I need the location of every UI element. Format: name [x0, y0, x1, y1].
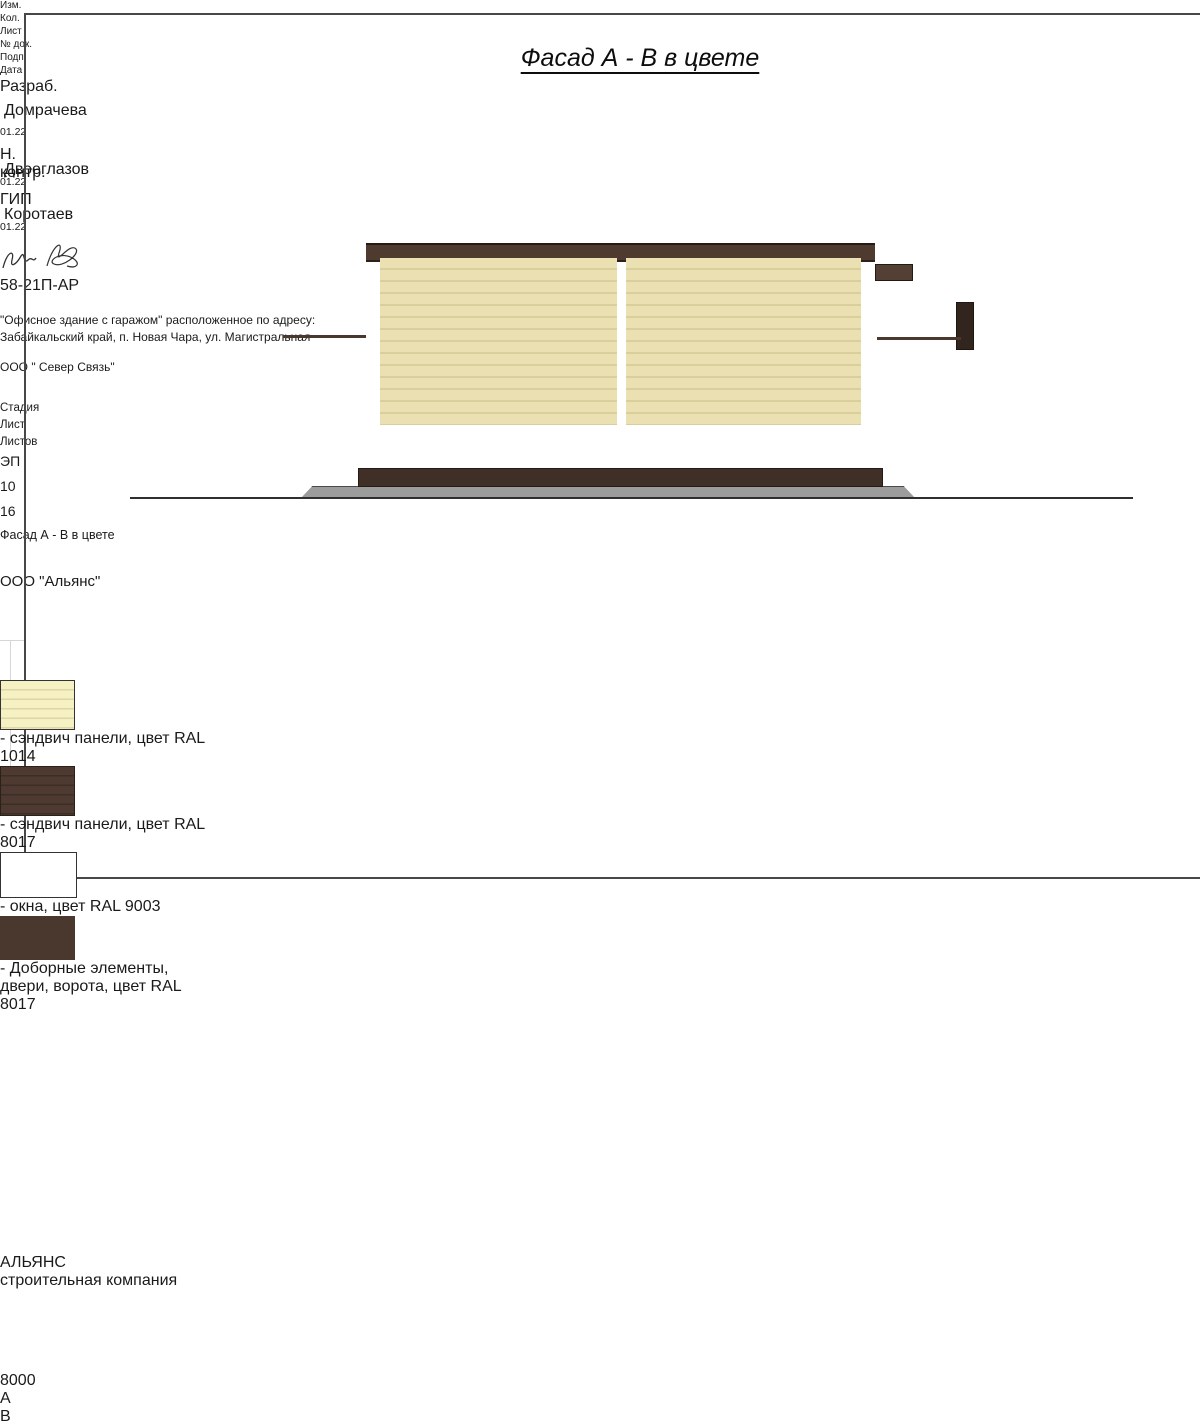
- plinth: [358, 468, 883, 487]
- axis-marker-a: А: [0, 1390, 1200, 1408]
- extension-line-b: [0, 1331, 1200, 1372]
- legend-label: - сэндвич панели, цвет RAL 1014: [0, 730, 230, 766]
- drawing-sheet: { "title": "Фасад А - В в цвете", "drawi…: [0, 0, 1200, 900]
- ground-line: [130, 497, 1133, 499]
- wall-panel-left: [380, 258, 617, 425]
- axis-letter-a: А: [0, 1390, 11, 1407]
- wall-panel-right: [626, 258, 861, 425]
- legend-label: - сэндвич панели, цвет RAL 8017: [0, 816, 230, 852]
- legend: - сэндвич панели, цвет RAL 1014 - сэндви…: [0, 680, 660, 820]
- legend-swatch-accessories: [0, 916, 75, 960]
- left-canopy-post: [0, 11, 1200, 161]
- watermark: АЛЬЯНС строительная компания: [0, 1254, 1200, 1290]
- legend-swatch-ral1014: [0, 680, 75, 730]
- left-canopy-roof: [283, 300, 366, 338]
- legend-swatch-ral9003: [0, 852, 77, 898]
- legend-label: - Доборные элементы, двери, ворота, цвет…: [0, 960, 210, 1014]
- extension-line-a: [0, 1290, 1200, 1331]
- middle-column: [0, 1042, 9, 1254]
- dimension-label: 8000: [0, 1372, 100, 1390]
- lower-brown-band: [380, 425, 861, 468]
- watermark-name: АЛЬЯНС: [0, 1254, 1200, 1272]
- legend-label: - окна, цвет RAL 9003: [0, 898, 190, 916]
- axis-marker-b: В: [0, 1408, 1200, 1426]
- left-canopy-pad: [0, 0, 70, 11]
- right-canopy-pad: [0, 311, 90, 322]
- right-roof-beam: [875, 264, 913, 281]
- legend-swatch-ral8017: [0, 766, 75, 816]
- watermark-subtitle: строительная компания: [0, 1272, 1200, 1290]
- axis-letter-b: В: [0, 1408, 11, 1425]
- right-canopy-roof: [877, 302, 961, 340]
